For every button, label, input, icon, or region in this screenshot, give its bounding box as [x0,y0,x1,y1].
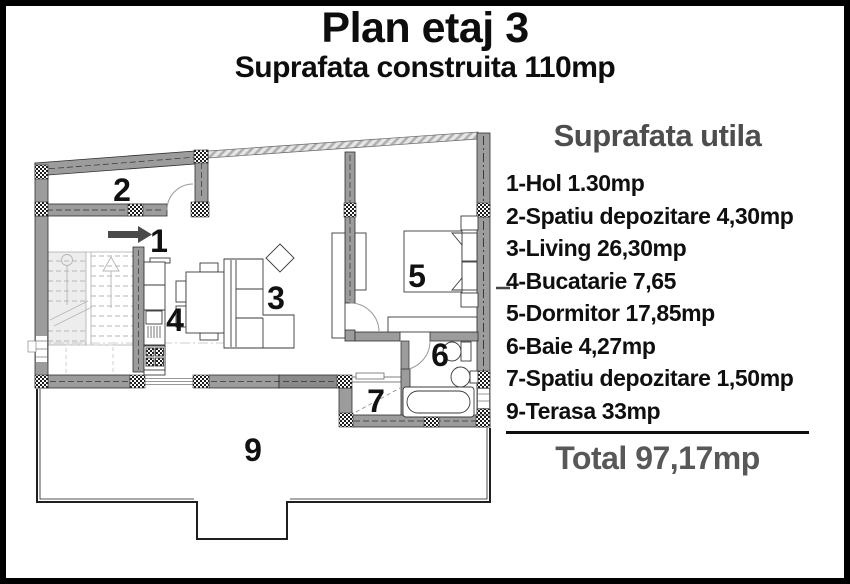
legend-item-depozitare2: 7-Spatiu depozitare 1,50mp [506,362,815,395]
page-header: Plan etaj 3 Suprafata construita 110mp [0,6,850,83]
legend-items: 1-Hol 1.30mp 2-Spatiu depozitare 4,30mp … [500,167,815,427]
floor-plan-page: Plan etaj 3 Suprafata construita 110mp S… [0,0,850,584]
legend-item-terasa: 9-Terasa 33mp [506,395,815,428]
wardrobe-living [332,233,345,338]
legend-item-living: 3-Living 26,30mp [506,232,815,265]
wall-bedroom-bottom-left [355,332,400,341]
wardrobe-bedroom [355,233,366,290]
chair [200,263,218,272]
entrance-arrow-icon [108,226,152,243]
room-label-living: 3 [267,280,285,316]
area-legend: Suprafata utila 1-Hol 1.30mp 2-Spatiu de… [500,118,815,477]
dresser [388,317,477,332]
legend-item-dormitor: 5-Dormitor 17,85mp [506,297,815,330]
legend-item-baie: 6-Baie 4,27mp [506,330,815,363]
bathroom-sink [451,367,478,387]
nightstand [461,216,478,230]
page-subtitle: Suprafata construita 110mp [0,53,850,83]
door-arc-entry [167,184,193,210]
pillow [462,233,477,261]
room-label-baie: 6 [431,337,449,373]
kitchen-sink [146,311,162,324]
door-arc-bedroom [350,303,379,332]
stair-up-arrow [103,257,119,271]
page-title: Plan etaj 3 [0,6,850,51]
legend-heading: Suprafata utila [500,118,815,154]
room-label-bucatarie: 4 [166,302,184,338]
room-label-dormitor: 5 [408,258,426,294]
room-label-terasa: 9 [244,432,262,468]
room-label-depozitare: 2 [113,172,131,208]
room-label-depozitare2: 7 [367,383,385,419]
diamond-table [266,244,294,272]
radiator-left [28,341,36,352]
door-leaf-bathroom [401,341,409,369]
legend-total: Total 97,17mp [500,440,815,477]
legend-item-depozitare: 2-Spatiu depozitare 4,30mp [506,200,815,233]
room-label-hol: 1 [150,223,168,259]
wall-top-strip [208,132,478,158]
legend-item-bucatarie: 4-Bucatarie 7,65 [506,265,815,298]
nightstand [461,293,478,307]
wall-storage7-left [339,388,352,415]
window-bathroom [478,389,489,408]
legend-divider [506,431,809,434]
bathtub [403,387,474,417]
legend-item-hol: 1-Hol 1.30mp [506,167,815,200]
chair [176,281,186,302]
pillow [462,262,477,290]
chair [200,333,218,340]
kitchen-stove [144,346,165,370]
